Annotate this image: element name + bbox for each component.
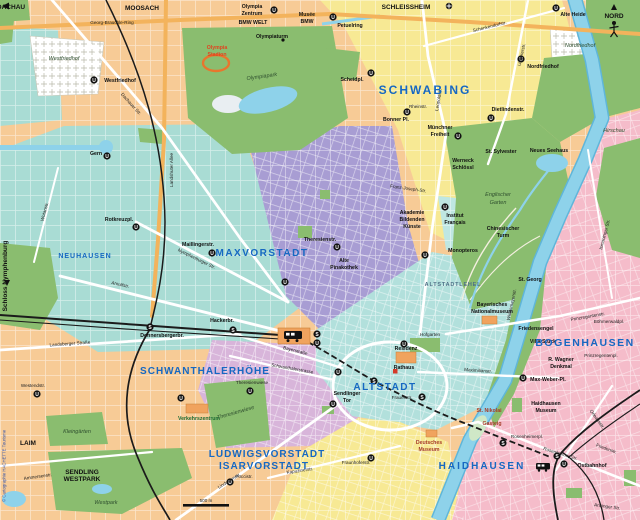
poi-label: Max-Weber-Pl. xyxy=(530,377,566,383)
poi-label: Zentrum xyxy=(242,11,263,17)
area-label-dachau: DACHAU xyxy=(0,4,25,11)
poi-label: Theresienwiese xyxy=(236,380,269,385)
poi-label: Frauenstr. xyxy=(392,395,413,400)
park xyxy=(320,190,330,199)
westfriedhof-crosses xyxy=(30,36,104,96)
station-letter: U xyxy=(554,6,558,12)
poi-label: Turm xyxy=(497,233,510,239)
poi-label-olympiastadion: Stadion xyxy=(207,52,226,58)
poi-label: Münchner xyxy=(428,125,453,131)
deutsches-museum-building xyxy=(426,430,437,437)
station-letter: U xyxy=(283,280,287,286)
compass-label: NORD xyxy=(604,13,623,20)
station-letter: U xyxy=(331,15,335,21)
poi-label: Bildenden xyxy=(399,217,424,223)
station-letter: U xyxy=(105,154,109,160)
poi-label: Dietlindenstr. xyxy=(492,107,525,113)
poi-label: Chinesischer xyxy=(487,226,520,232)
area-label-kleingaerten: Kleingärten xyxy=(63,429,91,435)
district-label-neuhausen: NEUHAUSEN xyxy=(58,253,111,260)
poi-label: Bonner Pl. xyxy=(383,117,409,123)
district-label-maxvorstadt: MAXVORSTADT xyxy=(216,248,309,259)
poi-label: Alte xyxy=(339,258,349,264)
area-label-westpark2: WESTPARK xyxy=(64,476,101,483)
district-label-isarvorstadt: ISARVORSTADT xyxy=(219,461,309,472)
poi-label: Museum xyxy=(418,447,439,453)
poi-label: Scheidpl. xyxy=(340,77,364,83)
station-letter: U xyxy=(272,8,276,14)
station-letter: U xyxy=(405,110,409,116)
poi-label: Hackerbr. xyxy=(210,318,234,324)
station-letter: U xyxy=(248,389,252,395)
poi-label: Residenz xyxy=(395,346,418,352)
poi-label: St. Georg xyxy=(518,277,541,283)
poi-label: R. Wagner xyxy=(548,357,573,363)
street-label: Rheinstr. xyxy=(409,104,427,109)
station-letter: U xyxy=(336,370,340,376)
poi-label: Westfriedhof xyxy=(104,78,136,84)
poi-label: Prinzregentenpl. xyxy=(584,353,617,358)
poi-label: Institut xyxy=(446,213,464,219)
station-letter: U xyxy=(92,78,96,84)
poi-label: Gasteig xyxy=(482,421,501,427)
district-label-bogenhausen: BOGENHAUSEN xyxy=(535,337,634,349)
poi-label: Gern xyxy=(90,151,102,157)
station-letter: U xyxy=(521,376,525,382)
station-letter: U xyxy=(335,245,339,251)
station-letter: U xyxy=(456,134,460,140)
verkehrszentrum-building xyxy=(186,404,208,413)
poi-label: BMW xyxy=(301,19,314,25)
poi-label: Donnersbergerbr. xyxy=(140,333,184,339)
park xyxy=(0,18,14,44)
area-label-englischer: Englischer xyxy=(485,192,512,198)
poi-label: Tor xyxy=(343,398,351,404)
scale-bar-rule xyxy=(183,504,229,507)
poi-label: Petuelring xyxy=(337,23,362,29)
area-label-garten: Garten xyxy=(490,200,507,206)
station-letter: U xyxy=(489,116,493,122)
poi-label: Schlössl xyxy=(452,165,474,171)
poi-label: Français xyxy=(444,220,465,226)
district-label-altstadt: ALTSTADT xyxy=(353,382,416,393)
poi-label: Rotkreuzpl. xyxy=(105,217,134,223)
poi-label: St. Sylvester xyxy=(485,149,516,155)
poi-label: Verkehrszentrum xyxy=(178,416,220,422)
area-label-westfriedhof: Westfriedhof xyxy=(49,56,80,62)
station-letter: U xyxy=(179,396,183,402)
area-label-laim: LAIM xyxy=(20,440,36,447)
station-letter: U xyxy=(134,225,138,231)
poi-label: Maillingerstr. xyxy=(182,242,215,248)
poi-label: Haidhausen xyxy=(531,401,560,407)
poi-label: Westendstr. xyxy=(21,383,45,388)
area-label-schleissheim: SCHLEISSHEIM xyxy=(382,4,431,11)
area-label-nordfriedhof: Nordfriedhof xyxy=(565,43,596,49)
poi-label: Denkmal xyxy=(550,364,572,370)
park xyxy=(138,128,164,144)
poi-label: Olympiaturm xyxy=(256,34,288,40)
district-label-haidhausen: HAIDHAUSEN xyxy=(439,461,526,472)
park xyxy=(566,488,582,498)
munich-city-map: U U U U U U U U U U U U U U U U S S S U … xyxy=(0,0,640,520)
poi-label: Monopteros xyxy=(448,248,478,254)
area-label-schloss: Schloss Nymphenburg xyxy=(2,241,9,312)
district-label-ludwigsvorstadt: LUDWIGSVORSTADT xyxy=(209,449,325,460)
kleinhesseloher-see xyxy=(536,154,568,172)
poi-label: Olympia xyxy=(242,4,263,10)
poi-label: Deutsches xyxy=(416,440,442,446)
poi-label: Poccistr. xyxy=(235,474,252,479)
map-canvas: U U U U U U U U U U U U U U U U S S S U … xyxy=(0,0,640,520)
poi-label: Rathaus xyxy=(394,365,415,371)
station-letter: U xyxy=(423,253,427,259)
poi-label: Künste xyxy=(403,224,421,230)
poi-label: Werneck xyxy=(452,158,474,164)
poi-label: Ostbahnhof xyxy=(577,463,606,469)
station-letter: U xyxy=(443,205,447,211)
station-letter: U xyxy=(210,251,214,257)
nationalmuseum-building xyxy=(482,316,497,324)
district-label-schwanthalerhoehe: SCHWANTHALERHÖHE xyxy=(140,364,270,377)
poi-label: Böhmerwaldpl. xyxy=(594,319,624,324)
poi-label: Theresienstr. xyxy=(304,237,337,243)
station-letter: U xyxy=(315,341,319,347)
map-attribution: © Cartographie HACHETTE Tourisme xyxy=(2,429,7,502)
area-label-westpark: Westpark xyxy=(94,500,117,506)
area-label-hofgarten: Hofgarten xyxy=(420,332,441,337)
area-label-moosach: MOOSACH xyxy=(125,5,159,12)
westpark-pond xyxy=(92,484,112,494)
poi-label: Neues Seehaus xyxy=(530,148,568,154)
street-label: Georg-Brauchle-Ring xyxy=(90,20,134,25)
station-letter: U xyxy=(562,462,566,468)
poi-label: Nationalmuseum xyxy=(471,309,513,315)
district-label-schwabing: SCHWABING xyxy=(379,83,472,97)
station-letter: U xyxy=(369,71,373,77)
area-label-hirschau: Hirschau xyxy=(603,128,625,134)
station-letter: U xyxy=(331,402,335,408)
poi-label: Friedensengel xyxy=(518,326,554,332)
poi-label: Akademie xyxy=(400,210,425,216)
poi-label: BMW WELT xyxy=(239,20,269,26)
area-label-sendling: SENDLING xyxy=(65,469,99,476)
poi-label: Rosenheimerpl. xyxy=(511,434,543,439)
park xyxy=(512,398,522,412)
poi-label: Alte Heide xyxy=(560,12,585,18)
nymphenburg-canal xyxy=(0,145,110,150)
residenz-building xyxy=(396,352,416,363)
poi-label: St. Nikolai xyxy=(476,408,502,414)
poi-label: Musée xyxy=(299,12,315,18)
schleissheim-marker-icon xyxy=(446,3,452,9)
poi-label: Fraunhoferstr. xyxy=(342,460,371,465)
poi-label: Pinakothek xyxy=(330,265,358,271)
schloss-nymphenburg-label: Schloss Nymphenburg xyxy=(2,241,10,312)
poi-label: Museum xyxy=(535,408,556,414)
luitpoldpark-area xyxy=(326,48,360,80)
district-label-altstadtlehel: ALTSTADTLEHEL xyxy=(425,282,482,288)
poi-label-olympiastadion: Olympia xyxy=(207,45,228,51)
street-label: Landshuter Allee xyxy=(169,152,174,187)
scale-label: 500 m xyxy=(200,498,213,503)
station-letter: U xyxy=(35,392,39,398)
poi-label: Nordfriedhof xyxy=(527,64,559,70)
poi-label: Freiheit xyxy=(431,132,450,138)
poi-label: Bayerisches xyxy=(477,302,508,308)
